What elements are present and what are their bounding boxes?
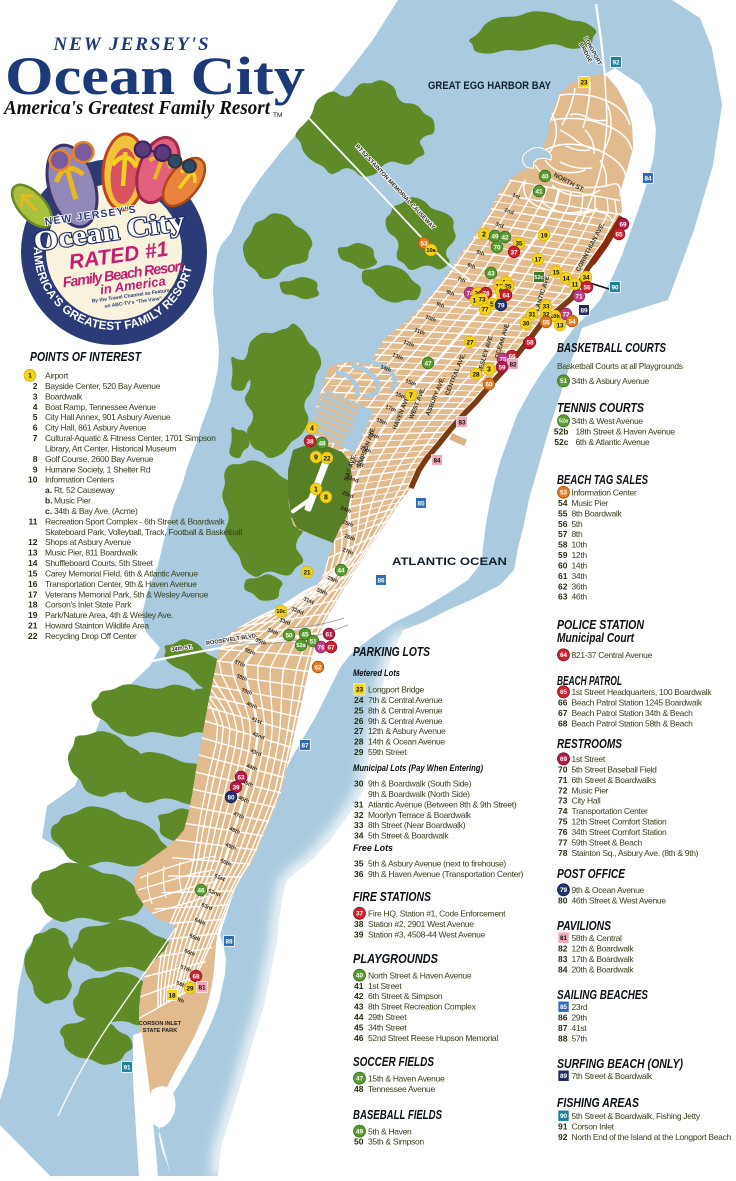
svg-text:34: 34 <box>582 274 590 281</box>
svg-text:13: 13 <box>28 548 38 558</box>
svg-text:Veterans Memorial Park, 5th &: Veterans Memorial Park, 5th & Wesley Ave… <box>45 589 209 599</box>
svg-text:a.: a. <box>45 485 52 495</box>
svg-text:57: 57 <box>558 529 568 539</box>
svg-text:3: 3 <box>487 367 491 374</box>
svg-text:52c: 52c <box>534 275 543 281</box>
svg-text:41: 41 <box>354 981 364 991</box>
svg-text:Beach Patrol Station 1245 Boar: Beach Patrol Station 1245 Boardwalk <box>572 697 703 707</box>
svg-text:32: 32 <box>354 810 364 820</box>
svg-text:34th Street: 34th Street <box>368 1023 407 1033</box>
svg-text:81: 81 <box>198 984 206 991</box>
svg-text:74: 74 <box>558 806 568 816</box>
svg-text:50: 50 <box>285 632 293 639</box>
svg-text:39: 39 <box>232 784 240 791</box>
svg-text:TENNIS COURTS: TENNIS COURTS <box>557 401 645 415</box>
svg-text:5th Street & Boardwalk: 5th Street & Boardwalk <box>368 831 449 841</box>
svg-text:29th Street: 29th Street <box>368 1012 407 1022</box>
svg-text:9th & Boardwalk (South Side): 9th & Boardwalk (South Side) <box>368 779 472 789</box>
svg-text:52a: 52a <box>559 419 569 425</box>
svg-text:SAILING BEACHES: SAILING BEACHES <box>557 988 649 1002</box>
svg-text:12th Street Comfort Station: 12th Street Comfort Station <box>572 817 667 827</box>
svg-text:86: 86 <box>558 1012 568 1022</box>
svg-text:85: 85 <box>417 500 425 507</box>
svg-text:30: 30 <box>354 779 364 789</box>
svg-text:43: 43 <box>354 1002 364 1012</box>
svg-text:20th & Boardwalk: 20th & Boardwalk <box>572 964 635 974</box>
svg-text:83: 83 <box>558 954 568 964</box>
svg-text:2: 2 <box>33 381 38 391</box>
svg-text:38: 38 <box>354 919 364 929</box>
svg-text:14: 14 <box>28 558 38 568</box>
svg-text:c.: c. <box>45 506 52 516</box>
svg-text:11: 11 <box>572 281 579 288</box>
svg-text:34th & West Avenue: 34th & West Avenue <box>572 416 644 426</box>
svg-text:TM: TM <box>273 112 282 119</box>
svg-text:67: 67 <box>558 708 568 718</box>
svg-text:Music Pier: Music Pier <box>54 496 91 506</box>
svg-text:61: 61 <box>558 571 568 581</box>
svg-text:29: 29 <box>354 747 364 757</box>
svg-text:Information Centers: Information Centers <box>45 475 114 485</box>
svg-text:46: 46 <box>354 1033 364 1043</box>
svg-text:18th Street & Haven Avenue: 18th Street & Haven Avenue <box>576 427 676 437</box>
svg-text:34th: 34th <box>572 571 588 581</box>
svg-text:Park/Nature Area, 4th & Wesley: Park/Nature Area, 4th & Wesley Ave. <box>45 610 173 620</box>
svg-text:38: 38 <box>306 438 314 445</box>
svg-text:5th Street Baseball Field: 5th Street Baseball Field <box>572 764 658 774</box>
svg-text:25: 25 <box>354 705 364 715</box>
svg-text:8: 8 <box>324 495 328 502</box>
svg-text:Music Pier, 811 Boardwalk: Music Pier, 811 Boardwalk <box>45 548 138 558</box>
svg-text:1: 1 <box>314 487 318 494</box>
svg-text:62: 62 <box>558 581 568 591</box>
svg-text:North Street & Haven Avenue: North Street & Haven Avenue <box>368 970 472 980</box>
svg-text:9th & Central Avenue: 9th & Central Avenue <box>368 716 443 726</box>
svg-text:18: 18 <box>28 600 38 610</box>
svg-text:28: 28 <box>354 737 364 747</box>
svg-text:58th & Central: 58th & Central <box>572 933 623 943</box>
svg-text:88: 88 <box>225 938 233 945</box>
svg-text:76: 76 <box>317 644 325 651</box>
svg-text:91: 91 <box>558 1121 568 1131</box>
svg-text:17: 17 <box>534 256 542 263</box>
svg-text:BEACH TAG SALES: BEACH TAG SALES <box>557 473 649 487</box>
svg-text:10a: 10a <box>426 248 436 254</box>
svg-text:49: 49 <box>356 1128 364 1135</box>
svg-text:59th Street: 59th Street <box>368 747 407 757</box>
svg-text:17: 17 <box>28 589 38 599</box>
svg-text:SOCCER FIELDS: SOCCER FIELDS <box>353 1055 435 1069</box>
svg-text:8th: 8th <box>572 529 583 539</box>
svg-text:10c: 10c <box>276 609 285 615</box>
svg-text:Station #3, 4508-44 West Avenu: Station #3, 4508-44 West Avenue <box>368 929 486 939</box>
svg-text:Ocean City: Ocean City <box>5 46 305 106</box>
svg-text:POLICE STATION: POLICE STATION <box>557 618 645 632</box>
svg-text:PAVILIONS: PAVILIONS <box>557 919 612 933</box>
svg-text:71: 71 <box>575 293 583 300</box>
svg-text:America's Greatest Family Reso: America's Greatest Family Resort <box>2 98 271 119</box>
svg-text:52a: 52a <box>296 643 306 649</box>
svg-text:7th Street & Boardwalk: 7th Street & Boardwalk <box>572 1071 653 1081</box>
svg-text:77: 77 <box>558 837 568 847</box>
svg-text:34th & Bay Ave. (Acme): 34th & Bay Ave. (Acme) <box>54 506 138 516</box>
svg-text:SURFING BEACH (ONLY): SURFING BEACH (ONLY) <box>557 1057 683 1071</box>
svg-text:6th & Atlantic Avenue: 6th & Atlantic Avenue <box>576 437 650 447</box>
svg-text:7: 7 <box>409 393 413 400</box>
svg-text:46th Street & West Avenue: 46th Street & West Avenue <box>572 896 667 906</box>
svg-text:9: 9 <box>33 464 38 474</box>
svg-text:City Hall: City Hall <box>572 796 601 806</box>
svg-text:1st Street: 1st Street <box>368 981 402 991</box>
svg-text:35: 35 <box>354 859 364 869</box>
svg-text:81: 81 <box>560 935 568 942</box>
svg-text:87: 87 <box>301 742 309 749</box>
svg-text:North End of the Island at the: North End of the Island at the Longport … <box>572 1132 732 1142</box>
svg-text:Carey Memorial Field, 6th & At: Carey Memorial Field, 6th & Atlantic Ave… <box>45 568 198 578</box>
svg-text:9th & Haven Avenue (Transporta: 9th & Haven Avenue (Transportation Cente… <box>368 869 524 879</box>
svg-text:54: 54 <box>568 318 576 325</box>
svg-text:Rt. 52 Causeway: Rt. 52 Causeway <box>54 485 115 495</box>
svg-text:BASEBALL FIELDS: BASEBALL FIELDS <box>353 1108 443 1122</box>
svg-text:Shuffleboard Courts, 5th Stree: Shuffleboard Courts, 5th Street <box>45 558 154 568</box>
svg-text:10th: 10th <box>572 540 588 550</box>
svg-text:Municipal Court: Municipal Court <box>557 631 635 645</box>
svg-text:40: 40 <box>356 973 364 980</box>
svg-text:54: 54 <box>558 498 568 508</box>
svg-text:46: 46 <box>197 887 205 894</box>
svg-text:Airport: Airport <box>45 371 69 381</box>
svg-text:13: 13 <box>556 322 564 329</box>
svg-text:40: 40 <box>541 173 549 180</box>
svg-text:56: 56 <box>583 284 591 291</box>
svg-text:8th Boardwalk: 8th Boardwalk <box>572 508 623 518</box>
svg-text:59: 59 <box>558 550 568 560</box>
svg-text:Library, Art Center, Historica: Library, Art Center, Historical Museum <box>45 443 176 453</box>
svg-text:55: 55 <box>558 508 568 518</box>
svg-text:1st Street: 1st Street <box>572 754 606 764</box>
svg-text:Municipal Lots (Pay When Enter: Municipal Lots (Pay When Entering) <box>353 763 483 773</box>
svg-text:31: 31 <box>354 799 364 809</box>
svg-text:2: 2 <box>482 232 486 239</box>
svg-text:39: 39 <box>354 929 364 939</box>
svg-text:86: 86 <box>377 577 385 584</box>
svg-text:82: 82 <box>558 943 568 953</box>
svg-text:44: 44 <box>354 1012 364 1022</box>
svg-text:12th & Asbury Avenue: 12th & Asbury Avenue <box>368 726 446 736</box>
svg-text:41: 41 <box>535 188 543 195</box>
svg-text:9th & Boardwalk (North Side): 9th & Boardwalk (North Side) <box>368 789 470 799</box>
svg-text:POST OFFICE: POST OFFICE <box>557 867 626 881</box>
svg-text:8: 8 <box>33 454 38 464</box>
svg-text:Recreation Sport Complex - 6th: Recreation Sport Complex - 6th Street & … <box>45 516 226 526</box>
svg-text:Transportation Center: Transportation Center <box>572 806 649 816</box>
svg-text:21: 21 <box>28 621 38 631</box>
svg-text:Metered Lots: Metered Lots <box>353 668 400 678</box>
svg-text:51: 51 <box>560 378 568 385</box>
svg-text:23: 23 <box>356 687 364 694</box>
svg-text:12: 12 <box>28 537 38 547</box>
svg-text:31: 31 <box>528 311 536 318</box>
svg-text:69: 69 <box>619 221 627 228</box>
svg-text:36: 36 <box>354 869 364 879</box>
svg-text:46th: 46th <box>572 592 588 602</box>
svg-text:Boat Ramp, Tennessee Avenue: Boat Ramp, Tennessee Avenue <box>45 402 156 412</box>
svg-text:34th & Asbury Avenue: 34th & Asbury Avenue <box>572 376 650 386</box>
svg-text:POINTS OF INTEREST: POINTS OF INTEREST <box>30 349 142 364</box>
svg-text:70: 70 <box>558 764 568 774</box>
svg-text:69: 69 <box>560 756 568 763</box>
svg-text:821-37 Central Avenue: 821-37 Central Avenue <box>572 650 653 660</box>
svg-text:Fire HQ, Station #1, Code Enfo: Fire HQ, Station #1, Code Enforcement <box>368 909 506 919</box>
svg-text:29th: 29th <box>572 1012 588 1022</box>
svg-text:14th & Ocean Avenue: 14th & Ocean Avenue <box>368 737 445 747</box>
svg-text:76: 76 <box>558 827 568 837</box>
svg-text:84: 84 <box>644 175 652 182</box>
svg-text:75: 75 <box>558 817 568 827</box>
svg-text:56: 56 <box>558 519 568 529</box>
svg-text:26: 26 <box>354 716 364 726</box>
svg-text:Corson Inlet: Corson Inlet <box>572 1121 615 1131</box>
svg-text:50: 50 <box>354 1137 364 1147</box>
svg-text:92: 92 <box>612 59 620 66</box>
svg-text:60: 60 <box>485 381 493 388</box>
svg-text:64: 64 <box>560 652 568 659</box>
svg-text:84: 84 <box>558 964 568 974</box>
svg-text:35th & Simpson: 35th & Simpson <box>368 1137 424 1147</box>
svg-text:Skateboard Park, Volleyball, T: Skateboard Park, Volleyball, Track, Foot… <box>45 527 242 537</box>
svg-text:PARKING LOTS: PARKING LOTS <box>353 645 431 659</box>
svg-text:43: 43 <box>487 270 495 277</box>
svg-text:16: 16 <box>28 579 38 589</box>
svg-text:9: 9 <box>314 455 318 462</box>
svg-text:GREAT EGG HARBOR BAY: GREAT EGG HARBOR BAY <box>428 80 552 92</box>
svg-text:19: 19 <box>28 610 38 620</box>
svg-text:STATE PARK: STATE PARK <box>143 1028 178 1034</box>
svg-text:Recycling Drop Off Center: Recycling Drop Off Center <box>45 631 137 641</box>
svg-text:70: 70 <box>493 244 501 251</box>
svg-text:Golf Course, 2600 Bay Avenue: Golf Course, 2600 Bay Avenue <box>45 454 154 464</box>
svg-text:28: 28 <box>472 371 480 378</box>
svg-text:48: 48 <box>354 1084 364 1094</box>
svg-text:60: 60 <box>558 560 568 570</box>
svg-text:85: 85 <box>560 1004 568 1011</box>
svg-text:Tennessee Avenue: Tennessee Avenue <box>368 1084 435 1094</box>
svg-text:79: 79 <box>560 887 568 894</box>
svg-text:42: 42 <box>354 991 364 1001</box>
svg-text:52b: 52b <box>554 427 569 437</box>
svg-text:53: 53 <box>560 490 568 497</box>
svg-text:Shops at Asbury Avenue: Shops at Asbury Avenue <box>45 537 131 547</box>
svg-text:15: 15 <box>552 269 560 276</box>
svg-text:Music Pier: Music Pier <box>572 785 609 795</box>
svg-text:1st Street Headquarters, 100 B: 1st Street Headquarters, 100 Boardwalk <box>572 687 713 697</box>
svg-text:15: 15 <box>28 568 38 578</box>
svg-text:62: 62 <box>314 664 322 671</box>
svg-text:5: 5 <box>33 412 38 422</box>
svg-text:90: 90 <box>611 284 619 291</box>
svg-text:37: 37 <box>510 249 518 256</box>
svg-text:45: 45 <box>301 631 309 638</box>
svg-text:66: 66 <box>558 697 568 707</box>
svg-text:FIRE STATIONS: FIRE STATIONS <box>353 890 432 904</box>
svg-text:Information Center: Information Center <box>572 488 637 498</box>
svg-text:65: 65 <box>615 231 623 238</box>
svg-text:12th & Boardwalk: 12th & Boardwalk <box>572 943 635 953</box>
svg-text:78: 78 <box>558 848 568 858</box>
svg-text:Longport Bridge: Longport Bridge <box>368 685 425 695</box>
svg-text:47: 47 <box>356 1076 364 1083</box>
svg-text:Bayside Center, 520 Bay Avenue: Bayside Center, 520 Bay Avenue <box>45 381 161 391</box>
svg-text:41st: 41st <box>572 1023 588 1033</box>
svg-text:52c: 52c <box>554 437 568 447</box>
svg-text:5th Street & Boardwalk, Fishin: 5th Street & Boardwalk, Fishing Jetty <box>572 1111 701 1121</box>
svg-text:1: 1 <box>28 373 32 380</box>
svg-text:27: 27 <box>354 726 364 736</box>
svg-text:92: 92 <box>558 1132 568 1142</box>
svg-text:CORSON INLET: CORSON INLET <box>139 1021 182 1027</box>
svg-text:ATLANTIC OCEAN: ATLANTIC OCEAN <box>392 556 507 568</box>
svg-text:52nd Street Reese Hupson Memor: 52nd Street Reese Hupson Memorial <box>368 1033 498 1043</box>
svg-text:82: 82 <box>509 361 517 368</box>
svg-text:45: 45 <box>354 1023 364 1033</box>
svg-text:73: 73 <box>478 296 486 303</box>
svg-text:57th: 57th <box>572 1033 588 1043</box>
svg-text:Corson's Inlet State Park: Corson's Inlet State Park <box>45 600 132 610</box>
svg-text:Atlantic Avenue (Between 8th &: Atlantic Avenue (Between 8th & 9th Stree… <box>368 799 517 809</box>
svg-text:Cultural-Aquatic & Fitness Cen: Cultural-Aquatic & Fitness Center, 1701 … <box>45 433 216 443</box>
svg-text:88: 88 <box>558 1033 568 1043</box>
svg-text:Music Pier: Music Pier <box>572 498 609 508</box>
svg-text:77: 77 <box>481 306 489 313</box>
svg-text:FISHING AREAS: FISHING AREAS <box>557 1096 640 1110</box>
svg-text:58: 58 <box>558 540 568 550</box>
svg-text:36th: 36th <box>572 581 588 591</box>
svg-text:Beach Patrol Station 58th & Be: Beach Patrol Station 58th & Beach <box>572 718 694 728</box>
svg-text:19: 19 <box>540 232 548 239</box>
svg-text:30: 30 <box>522 320 530 327</box>
svg-text:47: 47 <box>424 360 432 367</box>
svg-text:58: 58 <box>526 339 534 346</box>
svg-text:4: 4 <box>310 426 314 433</box>
svg-text:21: 21 <box>303 569 311 576</box>
svg-text:61: 61 <box>325 631 333 638</box>
svg-text:4: 4 <box>33 402 38 412</box>
svg-text:7th & Central Avenue: 7th & Central Avenue <box>368 695 443 705</box>
svg-text:44: 44 <box>337 567 345 574</box>
svg-text:9th & Ocean Avenue: 9th & Ocean Avenue <box>572 885 645 895</box>
svg-text:33: 33 <box>354 820 364 830</box>
svg-text:Beach Patrol Station 34th & Be: Beach Patrol Station 34th & Beach <box>572 708 694 718</box>
svg-text:27: 27 <box>466 339 474 346</box>
svg-text:90: 90 <box>560 1113 568 1120</box>
svg-text:PLAYGROUNDS: PLAYGROUNDS <box>353 952 439 966</box>
svg-text:68: 68 <box>192 973 200 980</box>
svg-text:12th: 12th <box>572 550 588 560</box>
svg-text:17th & Boardwalk: 17th & Boardwalk <box>572 954 635 964</box>
svg-text:59: 59 <box>498 364 506 371</box>
svg-text:RESTROOMS: RESTROOMS <box>557 737 623 751</box>
svg-text:63: 63 <box>558 592 568 602</box>
svg-text:83: 83 <box>458 419 466 426</box>
svg-text:91: 91 <box>123 1064 131 1071</box>
svg-text:6: 6 <box>33 423 38 433</box>
svg-text:Station #2, 2901 West Avenue: Station #2, 2901 West Avenue <box>368 919 474 929</box>
svg-text:6th Street & Simpson: 6th Street & Simpson <box>368 991 443 1001</box>
svg-text:73: 73 <box>558 796 568 806</box>
svg-text:8th & Central Avenue: 8th & Central Avenue <box>368 705 443 715</box>
svg-text:35: 35 <box>515 240 523 247</box>
svg-text:63: 63 <box>237 774 245 781</box>
svg-text:5th & Haven: 5th & Haven <box>368 1126 412 1136</box>
svg-text:89: 89 <box>580 307 588 314</box>
svg-text:14th: 14th <box>572 560 588 570</box>
svg-text:15th & Haven Avenue: 15th & Haven Avenue <box>368 1073 445 1083</box>
svg-text:6th Street & Boardwalks: 6th Street & Boardwalks <box>572 775 656 785</box>
svg-text:8th Street Recreation Complex: 8th Street Recreation Complex <box>368 1002 477 1012</box>
svg-text:18: 18 <box>168 992 176 999</box>
svg-text:b.: b. <box>45 496 53 506</box>
svg-text:Moorlyn Terrace & Boardwalk: Moorlyn Terrace & Boardwalk <box>368 810 472 820</box>
svg-text:84: 84 <box>433 457 441 464</box>
svg-text:80: 80 <box>558 896 568 906</box>
svg-text:Free Lots: Free Lots <box>353 843 393 853</box>
svg-text:22: 22 <box>28 631 38 641</box>
svg-text:Boardwalk: Boardwalk <box>45 391 83 401</box>
svg-text:5th & Asbury Avenue (next to f: 5th & Asbury Avenue (next to firehouse) <box>368 859 506 869</box>
svg-text:48: 48 <box>318 440 326 447</box>
svg-text:BASKETBALL COURTS: BASKETBALL COURTS <box>557 341 667 355</box>
svg-text:64: 64 <box>502 292 510 299</box>
svg-text:67: 67 <box>327 644 335 651</box>
svg-text:34th Street Comfort Station: 34th Street Comfort Station <box>572 827 667 837</box>
svg-text:BEACH PATROL: BEACH PATROL <box>557 674 622 688</box>
svg-text:5th: 5th <box>572 519 583 529</box>
svg-text:37: 37 <box>356 911 364 918</box>
svg-text:10: 10 <box>28 475 38 485</box>
svg-text:City Hall, 861 Asbury Avenue: City Hall, 861 Asbury Avenue <box>45 423 147 433</box>
svg-text:87: 87 <box>558 1023 568 1033</box>
svg-text:89: 89 <box>560 1073 568 1080</box>
svg-text:Howard Stainton Wildlife Area: Howard Stainton Wildlife Area <box>45 621 149 631</box>
svg-text:Basketball Courts at all Playg: Basketball Courts at all Playgrounds <box>557 361 683 371</box>
svg-text:7: 7 <box>33 433 38 443</box>
svg-text:23rd: 23rd <box>572 1002 588 1012</box>
svg-text:City Hall Annex, 901 Asbury Av: City Hall Annex, 901 Asbury Avenue <box>45 412 171 422</box>
svg-text:68: 68 <box>558 718 568 728</box>
svg-text:22: 22 <box>323 455 331 462</box>
svg-text:Transportation Center, 9th & H: Transportation Center, 9th & Haven Avenu… <box>45 579 197 589</box>
svg-text:65: 65 <box>560 689 568 696</box>
svg-text:8th Street (Near Boardwalk): 8th Street (Near Boardwalk) <box>368 820 466 830</box>
svg-text:3: 3 <box>33 391 38 401</box>
svg-text:42: 42 <box>501 234 509 241</box>
svg-text:34: 34 <box>354 831 364 841</box>
svg-text:23: 23 <box>580 79 588 86</box>
svg-text:Stainton Sq., Asbury Ave. (8th: Stainton Sq., Asbury Ave. (8th & 9th) <box>572 848 699 858</box>
svg-text:72: 72 <box>558 785 568 795</box>
svg-text:71: 71 <box>558 775 568 785</box>
svg-text:11: 11 <box>29 516 38 526</box>
svg-text:Humane Society, 1 Shelter Rd: Humane Society, 1 Shelter Rd <box>45 464 151 474</box>
svg-text:14: 14 <box>562 275 570 282</box>
svg-text:24: 24 <box>354 695 364 705</box>
svg-text:80: 80 <box>227 794 235 801</box>
svg-text:49: 49 <box>491 233 499 240</box>
svg-text:55: 55 <box>542 319 550 326</box>
svg-text:29: 29 <box>186 985 194 992</box>
svg-text:59th Street & Beach: 59th Street & Beach <box>572 837 643 847</box>
svg-text:79: 79 <box>497 302 505 309</box>
